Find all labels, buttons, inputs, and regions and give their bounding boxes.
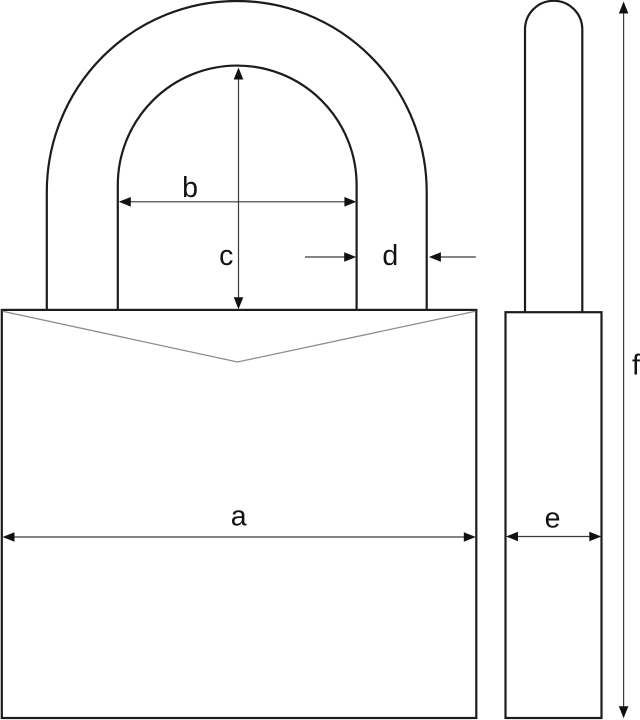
svg-text:b: b xyxy=(182,172,198,204)
svg-text:f: f xyxy=(632,350,640,382)
svg-text:a: a xyxy=(231,501,247,533)
svg-text:e: e xyxy=(545,503,561,535)
svg-text:c: c xyxy=(219,240,233,272)
svg-text:d: d xyxy=(382,240,398,272)
